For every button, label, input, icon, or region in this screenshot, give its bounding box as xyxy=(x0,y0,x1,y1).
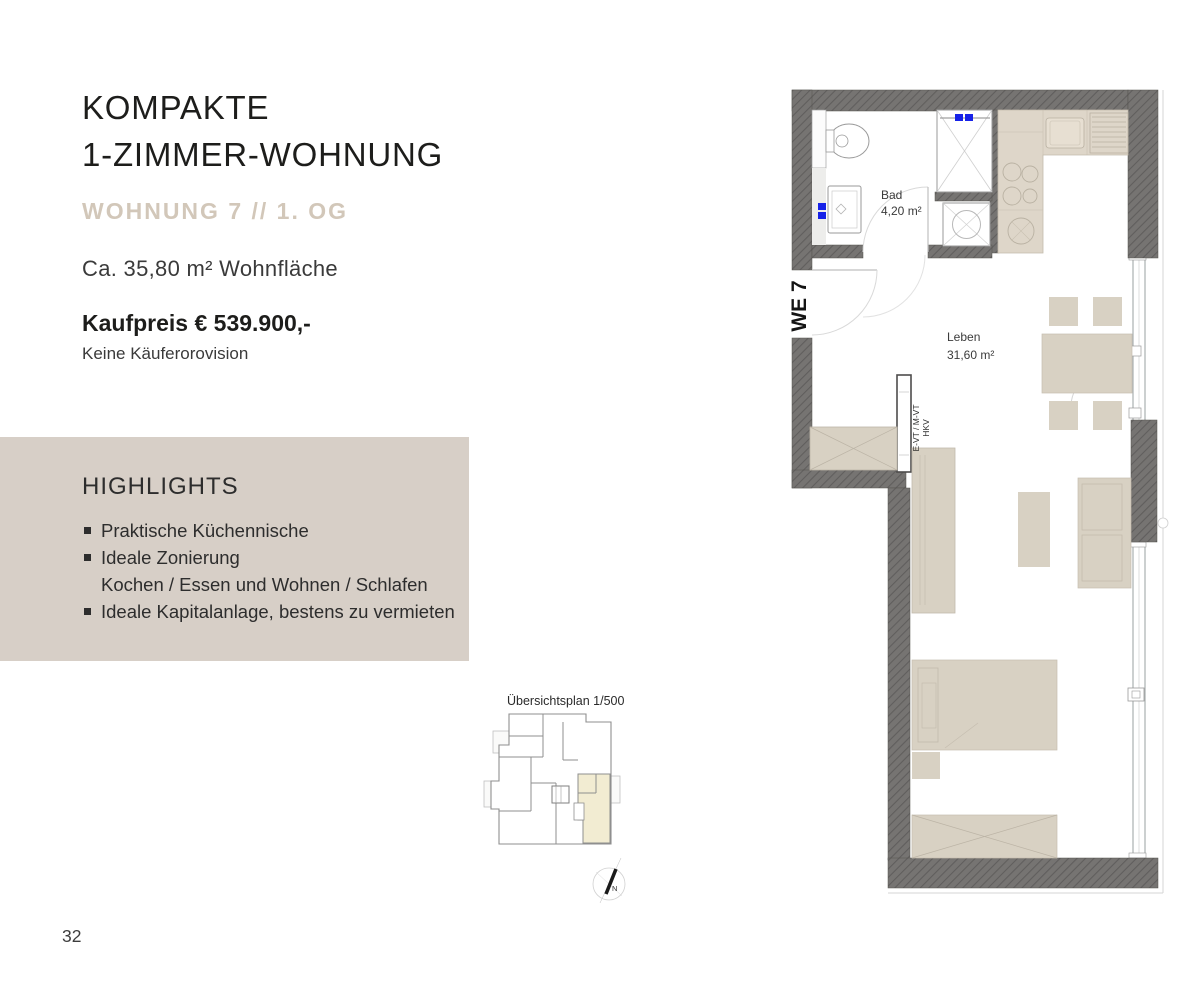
living-area-text: Ca. 35,80 m² Wohnfläche xyxy=(82,256,338,282)
room-area-leben: 31,60 m² xyxy=(947,348,994,362)
compass-letter: N xyxy=(612,884,617,893)
kitchenette xyxy=(998,110,1128,253)
bullet-square-icon xyxy=(84,527,91,534)
chair xyxy=(1049,297,1078,326)
highlights-box: HIGHLIGHTS Praktische Küchennische Ideal… xyxy=(0,437,469,661)
list-item: Praktische Küchennische xyxy=(82,517,469,544)
installation-shaft xyxy=(897,375,911,472)
toilet-icon xyxy=(829,124,869,158)
chair xyxy=(1093,401,1122,430)
north-arrow-icon: N xyxy=(593,858,625,903)
shaft-label-line2: HKV xyxy=(921,419,931,437)
page-title: KOMPAKTE 1-ZIMMER-WOHNUNG xyxy=(82,84,443,178)
room-area-bad: 4,20 m² xyxy=(881,204,922,218)
fixture-marker xyxy=(818,203,826,210)
list-item-label: Ideale Kapitalanlage, bestens zu vermiet… xyxy=(101,598,455,625)
bullet-square-icon xyxy=(84,608,91,615)
entrance-door xyxy=(812,270,877,335)
fixture-marker xyxy=(955,114,963,121)
washbasin-icon xyxy=(828,186,861,233)
coffee-table xyxy=(1018,492,1050,567)
nightstand xyxy=(912,752,940,779)
page-title-line1: KOMPAKTE xyxy=(82,84,443,131)
shelf xyxy=(912,448,955,613)
purchase-price: Kaufpreis € 539.900,- xyxy=(82,310,311,337)
floorplan-drawing: WE 7 Bad 4,20 m² Leben 31,60 m² E-VT / M… xyxy=(770,60,1180,910)
bullet-square-icon xyxy=(84,554,91,561)
unit-subtitle: WOHNUNG 7 // 1. OG xyxy=(82,198,348,225)
overview-plan-drawing: N xyxy=(480,690,640,920)
furniture xyxy=(810,297,1132,858)
shaft-label-line1: E-VT / M-VT xyxy=(911,404,921,451)
stair-landing xyxy=(574,803,584,820)
room-name-leben: Leben xyxy=(947,330,980,344)
cistern-niche xyxy=(812,110,826,168)
kitchen-sink-icon xyxy=(1046,118,1084,148)
list-item-label: Ideale Zonierung xyxy=(101,544,240,571)
window-handle-icon xyxy=(1128,688,1144,701)
sofa xyxy=(1078,478,1131,588)
chair xyxy=(1093,297,1122,326)
page-number: 32 xyxy=(62,926,81,947)
page-title-line2: 1-ZIMMER-WOHNUNG xyxy=(82,131,443,178)
dining-table xyxy=(1042,334,1132,393)
list-item: Ideale Zonierung xyxy=(82,544,469,571)
stair-core xyxy=(552,786,569,803)
bed xyxy=(912,660,1057,750)
highlights-heading: HIGHLIGHTS xyxy=(82,473,469,501)
unit-label: WE 7 xyxy=(788,280,811,331)
chair xyxy=(1049,401,1078,430)
room-name-bad: Bad xyxy=(881,188,902,202)
fixture-marker xyxy=(818,212,826,219)
list-item-subline: Kochen / Essen und Wohnen / Schlafen xyxy=(82,571,469,598)
provision-note: Keine Käuferorovision xyxy=(82,344,248,364)
shaft-label: E-VT / M-VTHKV xyxy=(911,404,931,451)
highlights-list: Praktische Küchennische Ideale Zonierung… xyxy=(82,517,469,625)
list-item: Ideale Kapitalanlage, bestens zu vermiet… xyxy=(82,598,469,625)
fixture-marker xyxy=(965,114,973,121)
list-item-label: Praktische Küchennische xyxy=(101,517,309,544)
